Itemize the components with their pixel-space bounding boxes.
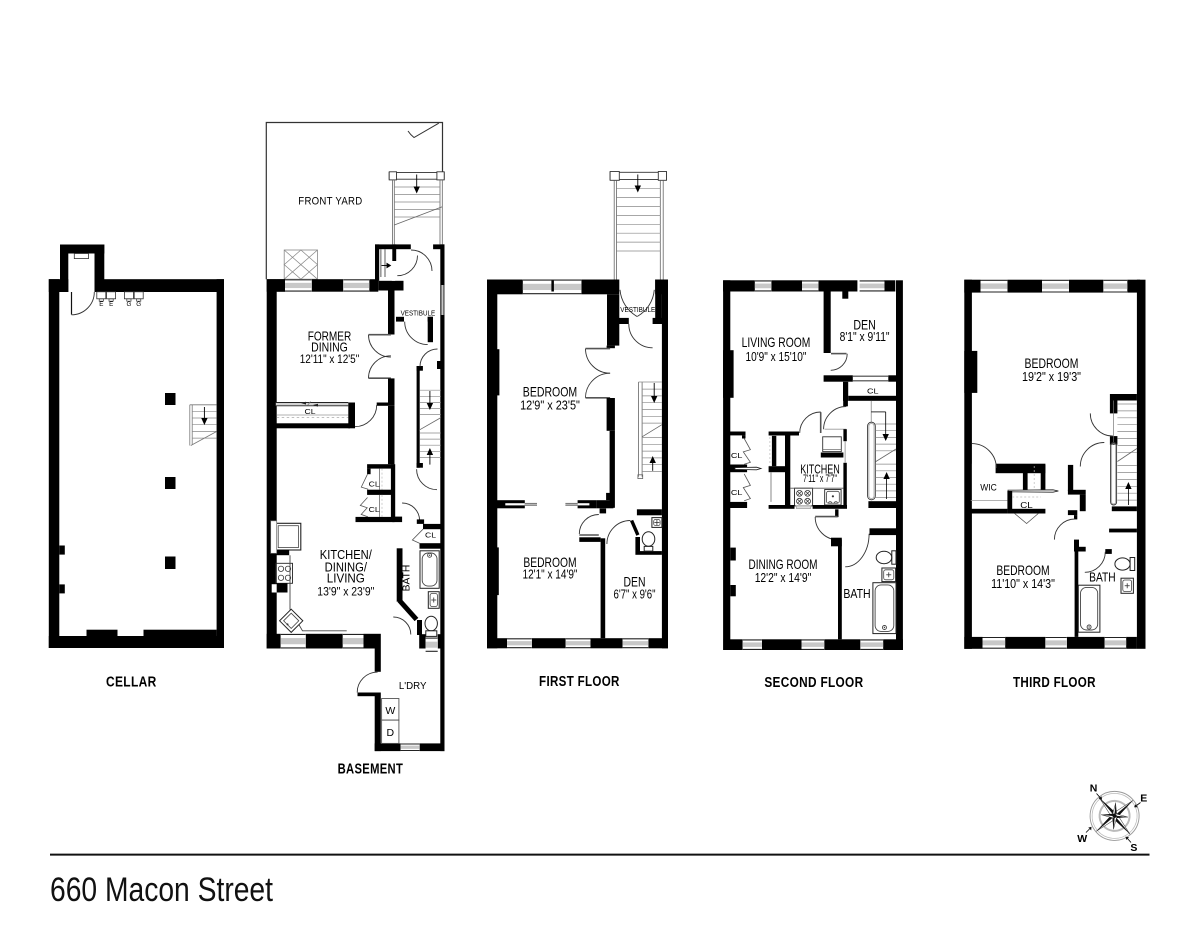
svg-text:BATH: BATH bbox=[1089, 571, 1116, 585]
svg-text:BEDROOM: BEDROOM bbox=[1025, 356, 1079, 371]
svg-text:FIRST FLOOR: FIRST FLOOR bbox=[539, 674, 620, 690]
svg-text:E: E bbox=[109, 301, 113, 308]
svg-text:11'10" x 14'3": 11'10" x 14'3" bbox=[991, 577, 1055, 591]
svg-text:CL: CL bbox=[867, 387, 879, 396]
svg-text:VESTIBULE: VESTIBULE bbox=[620, 305, 655, 314]
svg-text:7'11" x 7'7": 7'11" x 7'7" bbox=[803, 473, 837, 485]
svg-text:CL: CL bbox=[731, 488, 743, 497]
svg-text:E: E bbox=[1140, 792, 1147, 804]
svg-text:8'1" x 9'11": 8'1" x 9'11" bbox=[840, 330, 890, 344]
svg-text:12'1" x 14'9": 12'1" x 14'9" bbox=[523, 567, 578, 581]
svg-text:CELLAR: CELLAR bbox=[106, 675, 157, 691]
svg-text:13'9" x 23'9": 13'9" x 23'9" bbox=[317, 585, 374, 599]
svg-text:BASEMENT: BASEMENT bbox=[338, 761, 404, 777]
svg-text:BATH: BATH bbox=[843, 587, 870, 601]
svg-text:E: E bbox=[99, 301, 103, 308]
svg-text:W: W bbox=[385, 705, 395, 717]
svg-text:CL: CL bbox=[369, 480, 380, 489]
svg-text:G: G bbox=[136, 301, 141, 308]
svg-text:19'2" x 19'3": 19'2" x 19'3" bbox=[1022, 370, 1081, 384]
svg-text:D: D bbox=[387, 727, 395, 739]
svg-text:G: G bbox=[126, 301, 131, 308]
svg-text:THIRD FLOOR: THIRD FLOOR bbox=[1013, 675, 1096, 691]
svg-text:12'11" x 12'5": 12'11" x 12'5" bbox=[300, 352, 360, 366]
svg-text:CL: CL bbox=[1020, 500, 1033, 510]
svg-text:BEDROOM: BEDROOM bbox=[523, 384, 577, 399]
svg-text:L'DRY: L'DRY bbox=[399, 681, 427, 692]
svg-text:S: S bbox=[1130, 842, 1137, 854]
svg-text:LIVING ROOM: LIVING ROOM bbox=[742, 335, 811, 350]
svg-text:N: N bbox=[1090, 783, 1098, 795]
svg-text:660 Macon Street: 660 Macon Street bbox=[50, 871, 273, 909]
svg-text:DINING ROOM: DINING ROOM bbox=[749, 557, 818, 572]
svg-text:CL: CL bbox=[731, 451, 743, 460]
svg-text:FRONT YARD: FRONT YARD bbox=[298, 196, 362, 208]
svg-text:BATH: BATH bbox=[401, 565, 413, 592]
svg-text:VESTIBULE: VESTIBULE bbox=[401, 308, 436, 317]
svg-text:12'2" x 14'9": 12'2" x 14'9" bbox=[755, 571, 812, 585]
svg-text:CL: CL bbox=[369, 505, 380, 514]
svg-text:6'7" x 9'6": 6'7" x 9'6" bbox=[614, 588, 656, 602]
svg-text:10'9" x 15'10": 10'9" x 15'10" bbox=[746, 350, 807, 364]
svg-text:WIC: WIC bbox=[980, 483, 997, 493]
svg-text:12'9" x 23'5": 12'9" x 23'5" bbox=[520, 399, 580, 413]
svg-text:SECOND FLOOR: SECOND FLOOR bbox=[764, 675, 863, 691]
svg-text:LIVING: LIVING bbox=[327, 571, 365, 586]
svg-text:CL: CL bbox=[425, 531, 436, 540]
svg-text:BEDROOM: BEDROOM bbox=[996, 563, 1049, 578]
svg-text:W: W bbox=[1077, 833, 1087, 845]
